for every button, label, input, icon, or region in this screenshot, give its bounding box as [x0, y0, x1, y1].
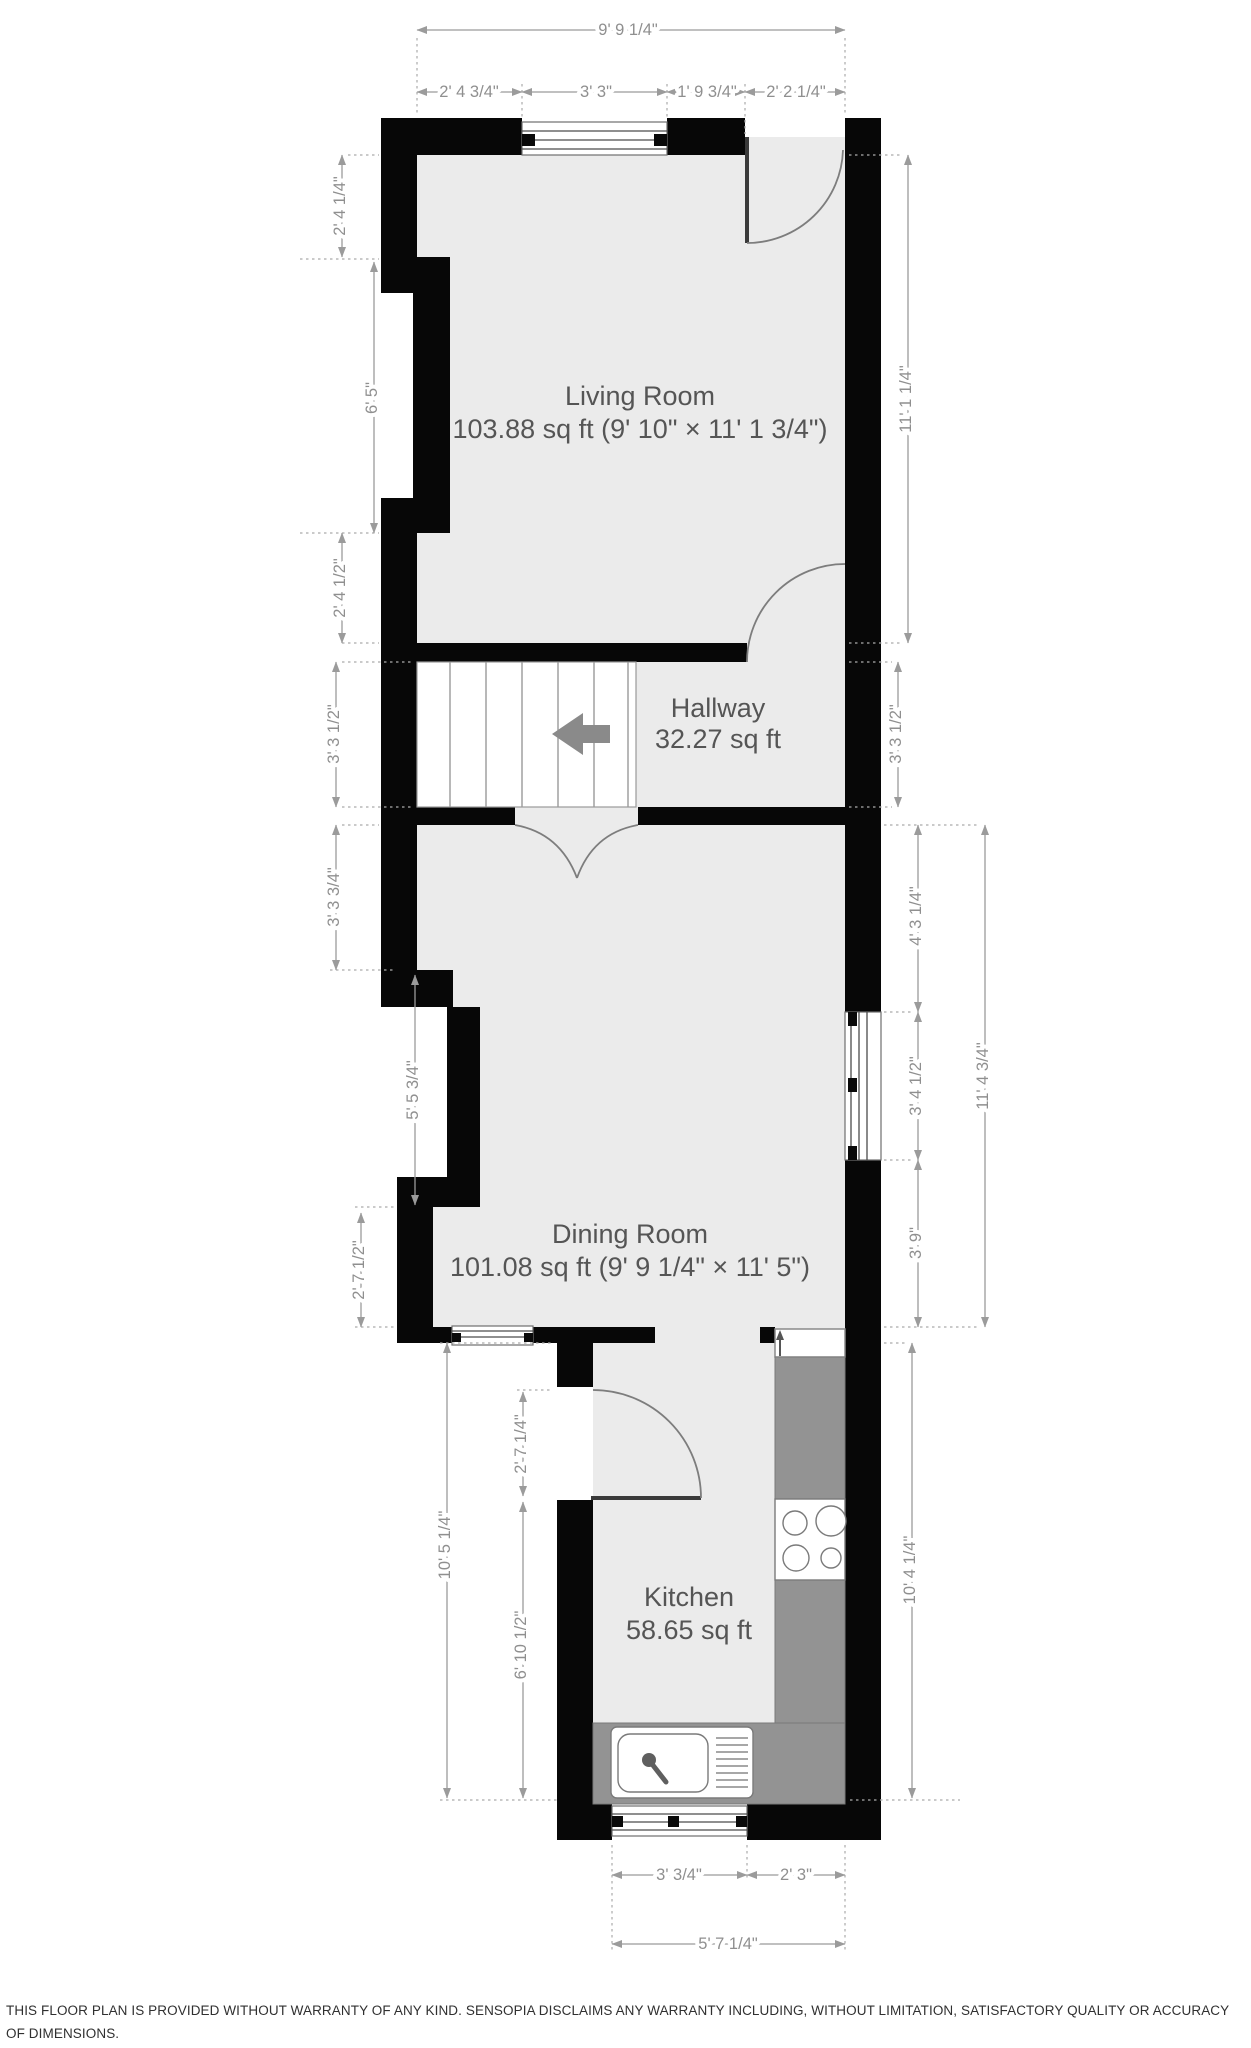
dim-right-dr-window: 3' 4 1/2" [907, 1056, 925, 1116]
hallway-area: 32.27 sq ft [655, 724, 782, 754]
living-room-window [522, 122, 667, 155]
dim-top-window: 3' 3" [580, 83, 612, 101]
floor-plan-page: Living Room 103.88 sq ft (9' 10" × 11' 1… [0, 0, 1251, 2048]
dim-right-dr-total: 11' 4 3/4" [974, 1042, 992, 1110]
dining-room-name: Dining Room [552, 1219, 708, 1249]
dim-left-kitchen-lower: 6' 10 1/2" [512, 1611, 530, 1680]
dim-left-kitchen-total: 10' 5 1/4" [436, 1511, 454, 1580]
staircase [417, 662, 636, 807]
sink-icon [611, 1727, 753, 1798]
floor-plan-drawing: Living Room 103.88 sq ft (9' 10" × 11' 1… [0, 0, 1251, 2048]
dim-left-lr-upper: 2' 4 1/4" [331, 176, 349, 236]
dim-kitchen-door: 2' 7 1/4" [512, 1414, 530, 1474]
kitchen-name: Kitchen [644, 1582, 734, 1612]
dim-left-lr-lower: 2' 4 1/2" [331, 558, 349, 618]
dim-top-door: 2' 2 1/4" [766, 83, 826, 101]
dining-room-window [845, 1012, 881, 1160]
dim-right-lr: 11' 1 1/4" [897, 365, 915, 433]
dim-bottom-total: 5' 7 1/4" [698, 1935, 758, 1953]
kitchen-area: 58.65 sq ft [626, 1615, 753, 1645]
dim-bottom-window: 3' 3/4" [656, 1866, 702, 1884]
dim-right-hall: 3' 3 1/2" [887, 704, 905, 764]
living-room-name: Living Room [565, 381, 715, 411]
dim-top-wall-right: 1' 9 3/4" [677, 83, 737, 101]
dim-right-kitchen: 10' 4 1/4" [901, 1536, 919, 1605]
dim-bottom-wall: 2' 3" [780, 1866, 812, 1884]
dim-left-dr-recess: 5' 5 3/4" [404, 1060, 422, 1120]
dining-room-area: 101.08 sq ft (9' 9 1/4" × 11' 5") [450, 1252, 810, 1282]
hallway-name: Hallway [671, 693, 766, 723]
disclaimer-text: THIS FLOOR PLAN IS PROVIDED WITHOUT WARR… [6, 2000, 1249, 2046]
dim-right-dr-upper: 4' 3 1/4" [907, 886, 925, 946]
dining-room-rear-window [452, 1326, 533, 1345]
dim-left-lr-recess: 6' 5" [363, 382, 381, 414]
dim-right-dr-lower: 3' 9" [907, 1227, 925, 1259]
dim-left-hall: 3' 3 1/2" [325, 704, 343, 764]
hob-icon [775, 1499, 846, 1580]
living-room-area: 103.88 sq ft (9' 10" × 11' 1 3/4") [453, 414, 828, 444]
appliance [775, 1329, 845, 1357]
kitchen-window [612, 1806, 747, 1836]
dim-top-wall-left: 2' 4 3/4" [439, 83, 499, 101]
dim-left-dr-lower: 2' 7 1/2" [350, 1240, 368, 1300]
dim-top-total: 9' 9 1/4" [598, 21, 658, 39]
dim-left-dr-upper: 3' 3 3/4" [325, 867, 343, 927]
